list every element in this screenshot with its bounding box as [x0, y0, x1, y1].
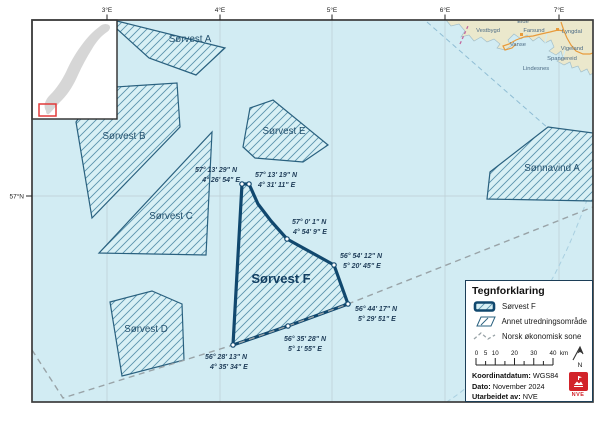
place-spangereid: Spangereid — [547, 56, 577, 62]
coord-7-lat: 56° 28' 13" N — [205, 353, 248, 361]
coord-3-lat: 57° 0' 1" N — [292, 218, 327, 226]
label-sonnavind-a: Sønnavind A — [524, 163, 580, 174]
nve-logo-icon — [569, 372, 588, 391]
legend-item-label: Annet utredningsområde — [502, 317, 587, 326]
meta-label: Dato: — [472, 382, 491, 391]
legend-item-label: Sørvest F — [502, 302, 536, 311]
label-sorvest-c: Sørvest C — [149, 211, 193, 222]
label-sorvest-e: Sørvest E — [262, 126, 305, 137]
label-sorvest-a: Sørvest A — [169, 34, 212, 45]
nve-logo-text: NVE — [568, 392, 588, 398]
scale-bar: 0 5 10 20 30 40 km — [472, 347, 569, 369]
axis-6e: 6°E — [440, 6, 451, 14]
sorvest-f-symbol — [472, 300, 498, 313]
label-sorvest-b: Sørvest B — [102, 131, 145, 142]
legend-title: Tegnforklaring — [472, 285, 587, 297]
meta-value: WGS84 — [533, 371, 559, 380]
legend-item-label: Norsk økonomisk sone — [502, 332, 581, 341]
axis-5e: 5°E — [327, 6, 338, 14]
scale-tick-20: 20 — [511, 350, 518, 357]
coord-3-lon: 4° 54' 9" E — [292, 228, 327, 236]
scale-tick-40: 40 — [550, 350, 557, 357]
meta-label: Utarbeidet av: — [472, 392, 521, 401]
meta-value: NVE — [523, 392, 538, 401]
place-vanse: Vanse — [510, 42, 526, 48]
axis-3e: 3°E — [102, 6, 113, 14]
coord-5-lon: 5° 29' 51" E — [358, 315, 396, 323]
place-vigeland: Vigeland — [561, 46, 583, 52]
north-arrow-icon: N — [569, 345, 587, 369]
coord-1-lat: 57° 13' 29" N — [195, 166, 238, 174]
other-area-symbol — [472, 315, 498, 328]
north-label: N — [578, 362, 583, 369]
coord-4-lat: 56° 54' 12" N — [340, 252, 383, 260]
place-farsund: Farsund — [523, 28, 544, 34]
scale-tick-5: 5 — [484, 350, 488, 357]
meta-label: Koordinatdatum: — [472, 371, 531, 380]
meta-value: November 2024 — [493, 382, 545, 391]
coord-6-lat: 56° 35' 28" N — [284, 335, 327, 343]
nve-logo: NVE — [568, 372, 588, 398]
scale-tick-30: 30 — [530, 350, 537, 357]
coord-7-lon: 4° 35' 34" E — [209, 363, 248, 371]
coord-2-lat: 57° 13' 19" N — [255, 171, 298, 179]
legend-item-okonomisk-sone: Norsk økonomisk sone — [472, 330, 587, 343]
scale-unit: km — [560, 350, 568, 357]
place-vestbygd: Vestbygd — [476, 28, 500, 34]
map-page: Sørvest A Sørvest B Sørvest C Sørvest D … — [0, 0, 600, 423]
label-sorvest-d: Sørvest D — [124, 324, 168, 335]
coord-1-lon: 4° 26' 54" E — [201, 176, 240, 184]
scale-row: 0 5 10 20 30 40 km N — [472, 345, 587, 369]
coord-5-lat: 56° 44' 17" N — [355, 305, 398, 313]
axis-57n: 57°N — [9, 193, 24, 201]
economic-zone-symbol — [472, 330, 498, 343]
scale-tick-10: 10 — [492, 350, 499, 357]
coord-4-lon: 5° 20' 45" E — [343, 262, 381, 270]
inset-map — [32, 20, 117, 119]
coord-2-lon: 4° 31' 11" E — [257, 181, 296, 189]
place-lyngdal: Lyngdal — [562, 29, 582, 35]
axis-7e: 7°E — [554, 6, 565, 14]
label-sorvest-f: Sørvest F — [251, 271, 310, 286]
scale-tick-0: 0 — [475, 350, 479, 357]
legend-item-sorvest-f: Sørvest F — [472, 300, 587, 313]
legend-item-annet: Annet utredningsområde — [472, 315, 587, 328]
legend-box: Tegnforklaring Sørvest F Annet utredning… — [465, 280, 593, 402]
axis-4e: 4°E — [215, 6, 226, 14]
coord-6-lon: 5° 1' 55" E — [288, 345, 322, 353]
place-lindesnes: Lindesnes — [523, 66, 550, 72]
